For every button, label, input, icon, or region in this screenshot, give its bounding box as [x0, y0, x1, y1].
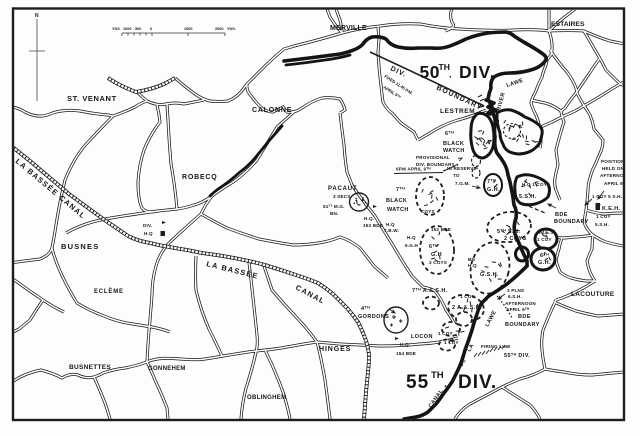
svg-text:7.G.M.: 7.G.M. [455, 181, 470, 186]
svg-text:BUSNETTES: BUSNETTES [69, 364, 111, 371]
svg-text:5ᵀᴴ S.H.: 5ᵀᴴ S.H. [497, 228, 520, 235]
svg-text:152 BDE: 152 BDE [431, 227, 451, 232]
svg-text:K.E.H.: K.E.H. [602, 206, 621, 212]
svg-text:APRIL 9: APRIL 9 [604, 181, 623, 186]
svg-text:TH: TH [439, 62, 450, 72]
svg-text:ECLÈME: ECLÈME [94, 287, 124, 295]
svg-text:IN RESERVE: IN RESERVE [447, 166, 477, 171]
svg-text:BOUNDARY: BOUNDARY [505, 322, 540, 328]
svg-text:7ᵀᴴ: 7ᵀᴴ [396, 186, 405, 193]
svg-text:BDE: BDE [518, 314, 531, 320]
svg-text:DIV.: DIV. [459, 62, 495, 82]
svg-text:4ᵀᴴ: 4ᵀᴴ [361, 305, 370, 312]
svg-text:BN.: BN. [330, 211, 339, 216]
svg-text:7.B.W.: 7.B.W. [384, 228, 399, 233]
svg-text:BLACK: BLACK [386, 198, 407, 204]
svg-text:MERVILLE: MERVILLE [330, 25, 367, 32]
svg-text:6ᵀᴴ: 6ᵀᴴ [445, 130, 454, 137]
svg-text:FIRING LINE: FIRING LINE [481, 344, 511, 349]
svg-text:154 BDE: 154 BDE [396, 351, 416, 356]
svg-text:BLACK: BLACK [443, 141, 464, 147]
svg-text:H.Q: H.Q [468, 263, 477, 268]
svg-text:7ᵀᴴ A.&.S.H.: 7ᵀᴴ A.&.S.H. [412, 287, 448, 294]
svg-text:BUSNES: BUSNES [61, 242, 99, 251]
svg-text:ROBECQ: ROBECQ [182, 174, 218, 181]
svg-text:H.Q: H.Q [407, 235, 416, 240]
svg-text:ST. VENANT: ST. VENANT [67, 94, 117, 103]
svg-text:0: 0 [150, 27, 152, 31]
svg-text:1 COY: 1 COY [596, 214, 611, 219]
svg-text:H.Q: H.Q [144, 231, 153, 236]
svg-text:HELD ON: HELD ON [602, 166, 625, 171]
svg-text:1 COY: 1 COY [438, 331, 453, 336]
svg-text:K.E.H: K.E.H [539, 230, 556, 236]
svg-text:TH: TH [431, 370, 444, 381]
svg-text:1000: 1000 [184, 27, 192, 31]
svg-text:DIV.: DIV. [143, 223, 152, 228]
svg-text:GONNEHEM: GONNEHEM [148, 366, 186, 372]
svg-text:5.S.H.: 5.S.H. [519, 194, 537, 200]
svg-text:2 A.&.S.H.: 2 A.&.S.H. [452, 305, 482, 311]
svg-text:PROVISIONAL: PROVISIONAL [416, 155, 450, 160]
svg-text:POSITION: POSITION [601, 159, 625, 164]
svg-text:BN: BN [468, 257, 476, 262]
svg-text:3 SECS: 3 SECS [333, 194, 351, 199]
svg-text:BOUNDARY: BOUNDARY [554, 219, 589, 225]
svg-text:51³ᵀ M.G.: 51³ᵀ M.G. [323, 204, 345, 209]
svg-text:G.H.: G.H. [487, 187, 500, 193]
svg-text:G.H.: G.H. [538, 260, 551, 266]
svg-text:6.S.H.: 6.S.H. [508, 294, 522, 299]
svg-text:ESTAIRES: ESTAIRES [551, 21, 585, 28]
svg-text:1 COY: 1 COY [444, 340, 459, 345]
svg-text:H.Q 1 COY: H.Q 1 COY [522, 182, 547, 187]
svg-text:1 COY: 1 COY [460, 294, 475, 299]
svg-text:50: 50 [420, 62, 440, 82]
svg-text:5.S.H.: 5.S.H. [595, 222, 609, 227]
svg-text:6ᵀᴴ: 6ᵀᴴ [540, 252, 549, 259]
svg-text:55: 55 [406, 372, 429, 393]
svg-text:2 COYS: 2 COYS [504, 236, 527, 242]
svg-text:1 COY: 1 COY [537, 237, 552, 242]
svg-text:G.S.H.: G.S.H. [480, 272, 499, 278]
svg-text:TO: TO [453, 173, 460, 178]
svg-text:3 COYS: 3 COYS [429, 260, 447, 265]
svg-text:3 PLNS: 3 PLNS [507, 288, 524, 293]
svg-text:7ᵀᴴ: 7ᵀᴴ [487, 178, 496, 185]
svg-text:YDS.: YDS. [227, 27, 236, 31]
svg-text:500: 500 [135, 27, 141, 31]
svg-text:6.G.H: 6.G.H [405, 243, 418, 248]
svg-text:BDE: BDE [555, 212, 568, 218]
svg-text:GORDONS: GORDONS [358, 314, 389, 320]
svg-text:LACOUTURE: LACOUTURE [571, 291, 615, 298]
svg-text:COYS: COYS [421, 209, 435, 214]
svg-text:YDS: YDS [112, 27, 120, 31]
svg-text:G.H: G.H [431, 252, 442, 258]
svg-text:6PM APRIL 9ᵀᴴ: 6PM APRIL 9ᵀᴴ [396, 167, 431, 172]
svg-text:OBLINGHEM: OBLINGHEM [247, 395, 286, 401]
svg-text:1 COY 5 S.H.: 1 COY 5 S.H. [592, 194, 622, 199]
svg-text:153 BDE: 153 BDE [363, 223, 383, 228]
svg-text:APRIL 9ᵀᴴ: APRIL 9ᵀᴴ [506, 307, 529, 312]
svg-text:H.Q: H.Q [386, 222, 395, 227]
svg-text:HINGES: HINGES [319, 346, 351, 353]
svg-text:55ᵀᴴ DIV.: 55ᵀᴴ DIV. [504, 352, 530, 359]
svg-text:AFTERNOON: AFTERNOON [505, 301, 536, 306]
svg-text:CALONNE: CALONNE [252, 107, 292, 114]
svg-text:2000: 2000 [215, 27, 223, 31]
svg-text:1000: 1000 [123, 27, 131, 31]
svg-text:WATCH: WATCH [443, 148, 465, 154]
svg-text:N: N [35, 13, 39, 19]
svg-text:H.Q.: H.Q. [364, 216, 374, 221]
svg-text:LESTREM: LESTREM [440, 108, 475, 115]
svg-text:WATCH: WATCH [387, 207, 409, 213]
svg-text:6ᵀᴴ: 6ᵀᴴ [429, 243, 438, 250]
svg-text:DIV.: DIV. [458, 372, 497, 393]
svg-text:.: . [444, 378, 447, 390]
svg-text:PACAUT: PACAUT [328, 186, 357, 192]
svg-text:H.Q.: H.Q. [400, 342, 410, 347]
svg-text:LOCON: LOCON [411, 334, 433, 340]
